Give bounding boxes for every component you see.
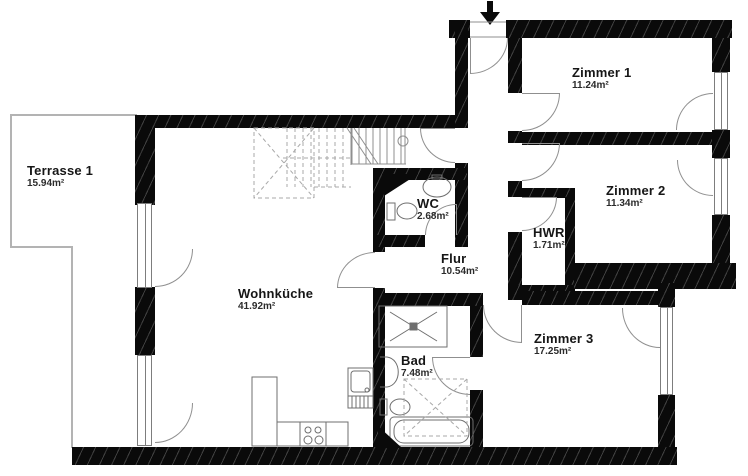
stove-icon (300, 422, 326, 446)
room-area: 17.25m² (534, 346, 593, 358)
shower-icon (379, 306, 447, 347)
wc-duct-triangle (384, 174, 418, 196)
room-name: HWR (533, 225, 565, 240)
stairs-upper-dashed (254, 128, 351, 198)
room-area: 1.71m² (533, 240, 565, 252)
bathtub-icon (390, 417, 473, 446)
room-name: Zimmer 3 (534, 331, 593, 346)
room-label-terrasse: Terrasse 1 15.94m² (27, 163, 93, 190)
room-label-zimmer3: Zimmer 3 17.25m² (534, 331, 593, 358)
room-area: 2.68m² (417, 211, 449, 223)
room-area: 11.34m² (606, 198, 665, 210)
bad-sink-icon (380, 357, 398, 387)
floor-plan: Terrasse 1 15.94m² Wohnküche 41.92m² WC … (0, 0, 748, 476)
room-label-bad: Bad 7.48m² (401, 353, 433, 380)
room-label-wc: WC 2.68m² (417, 196, 449, 223)
detail-layer (0, 0, 748, 476)
room-name: Zimmer 2 (606, 183, 665, 198)
bad-dashed-marker (404, 379, 467, 436)
bad-toilet-icon (380, 399, 410, 415)
wc-toilet-icon (387, 203, 417, 220)
room-area: 10.54m² (441, 266, 478, 278)
room-label-flur: Flur 10.54m² (441, 251, 478, 278)
entrance-arrow-icon (480, 1, 500, 25)
room-label-zimmer2: Zimmer 2 11.34m² (606, 183, 665, 210)
room-name: Flur (441, 251, 478, 266)
room-name: Zimmer 1 (572, 65, 631, 80)
room-name: Wohnküche (238, 286, 313, 301)
room-name: WC (417, 196, 449, 211)
room-name: Terrasse 1 (27, 163, 93, 178)
room-label-hwr: HWR 1.71m² (533, 225, 565, 252)
kitchen-sink-icon (348, 371, 373, 408)
room-area: 41.92m² (238, 301, 313, 313)
room-label-zimmer1: Zimmer 1 11.24m² (572, 65, 631, 92)
stairs-icon (347, 128, 408, 165)
room-area: 15.94m² (27, 178, 93, 190)
kitchen-counter-icon (252, 368, 373, 446)
room-name: Bad (401, 353, 433, 368)
room-area: 11.24m² (572, 80, 631, 92)
room-area: 7.48m² (401, 368, 433, 380)
entrance-threshold (470, 22, 506, 37)
room-label-wohnkueche: Wohnküche 41.92m² (238, 286, 313, 313)
wc-sink-icon (423, 175, 451, 197)
